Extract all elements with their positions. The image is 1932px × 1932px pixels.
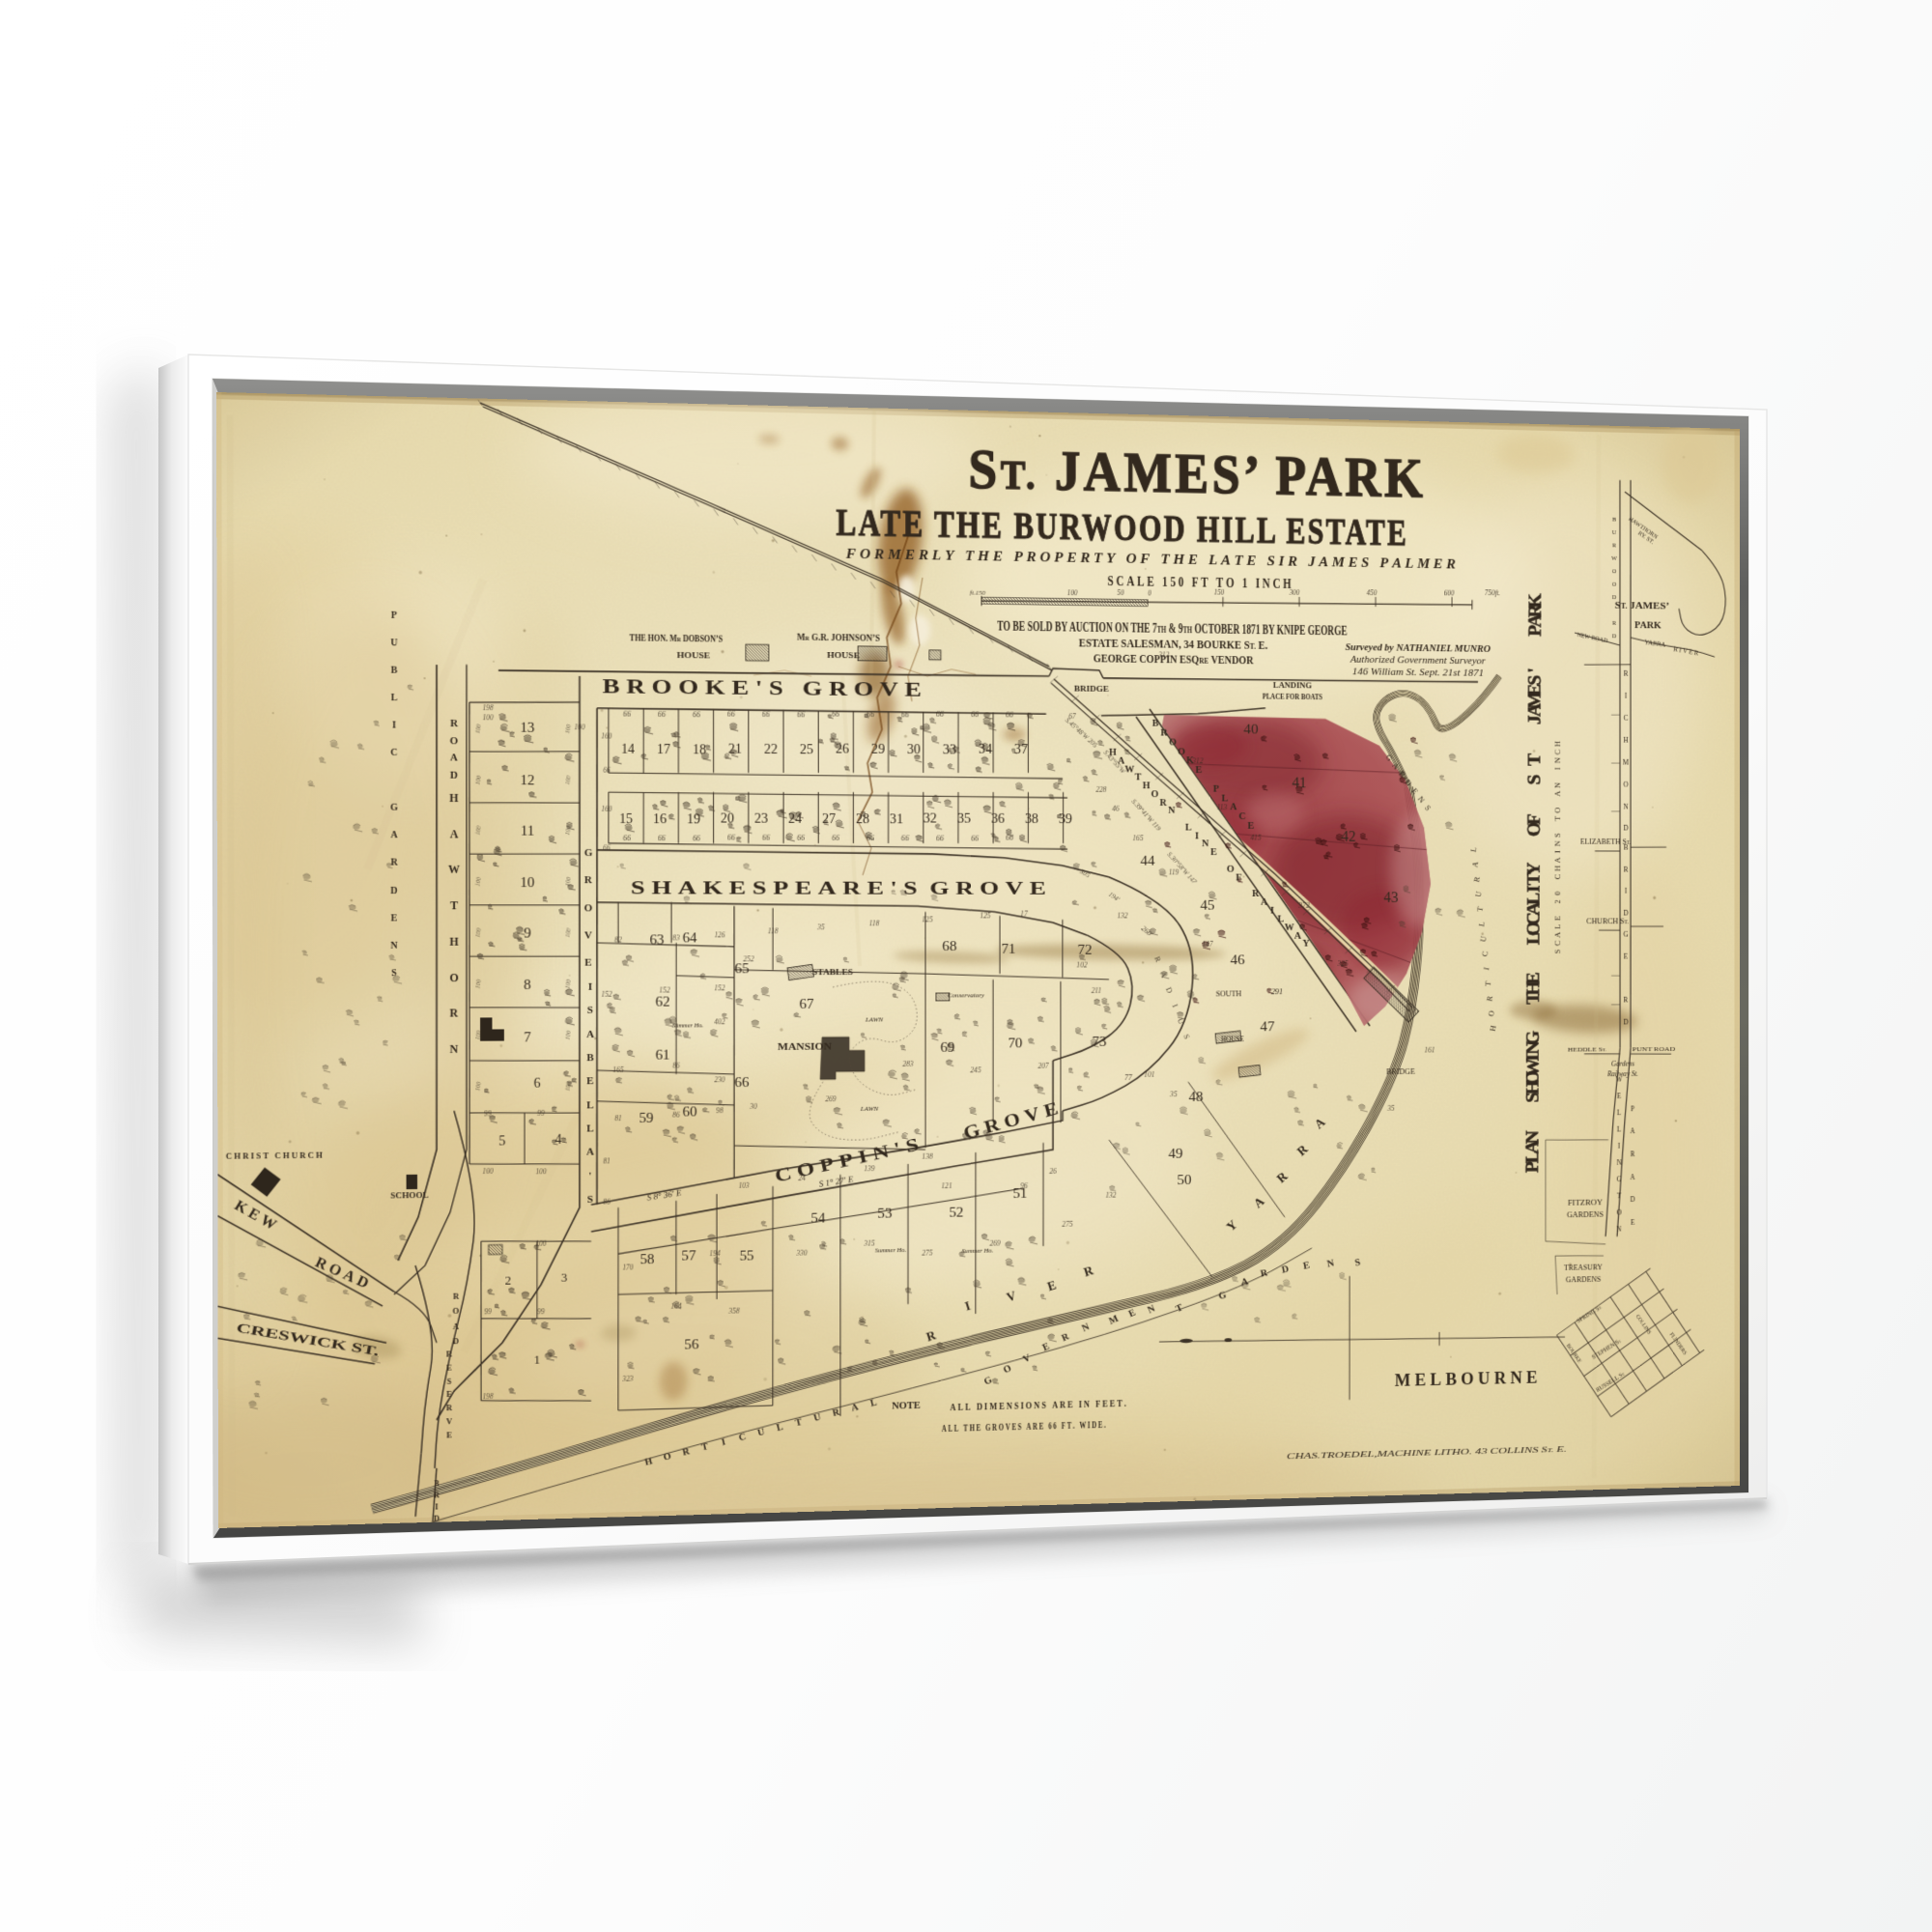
- svg-text:63: 63: [649, 933, 664, 949]
- svg-text:35: 35: [1169, 1090, 1177, 1097]
- svg-text:71: 71: [1001, 942, 1015, 957]
- svg-text:R: R: [446, 1404, 453, 1413]
- svg-text:160: 160: [601, 732, 611, 741]
- svg-text:24: 24: [798, 1174, 806, 1182]
- svg-text:8: 8: [524, 977, 531, 992]
- svg-text:4: 4: [554, 1132, 561, 1147]
- svg-text:Conservatory: Conservatory: [948, 990, 985, 999]
- svg-text:55: 55: [740, 1249, 754, 1264]
- svg-text:ST. JAMES’: ST. JAMES’: [1615, 600, 1669, 611]
- svg-text:ESTATE SALESMAN, 34 BOURKE ST.: ESTATE SALESMAN, 34 BOURKE ST. E.: [1079, 637, 1268, 653]
- svg-text:170: 170: [622, 1264, 633, 1272]
- svg-text:600: 600: [1444, 588, 1455, 596]
- svg-text:O: O: [1617, 1208, 1622, 1216]
- svg-text:66: 66: [603, 843, 611, 852]
- svg-text:300: 300: [1289, 588, 1300, 597]
- svg-text:R: R: [1624, 670, 1629, 678]
- svg-text:HEDDLE ST.: HEDDLE ST.: [1568, 1045, 1606, 1053]
- svg-text:D: D: [453, 1336, 459, 1346]
- svg-text:H: H: [1553, 741, 1562, 747]
- svg-text:SCHOOL: SCHOOL: [390, 1190, 429, 1200]
- svg-text:99: 99: [537, 1109, 545, 1118]
- svg-text:165: 165: [1132, 834, 1143, 841]
- svg-text:66: 66: [832, 834, 840, 842]
- svg-text:86: 86: [603, 1198, 611, 1207]
- svg-text:E: E: [1631, 1219, 1634, 1227]
- svg-text:ELIZABETH ST.: ELIZABETH ST.: [1580, 838, 1632, 845]
- svg-text:R: R: [1624, 996, 1629, 1004]
- svg-text:R: R: [1612, 543, 1616, 549]
- svg-text:R: R: [584, 875, 593, 887]
- svg-text:118: 118: [869, 919, 880, 927]
- svg-text:T: T: [1617, 1192, 1621, 1200]
- svg-text:N: N: [1553, 782, 1562, 788]
- svg-text:23: 23: [754, 812, 768, 827]
- svg-text:33: 33: [943, 743, 956, 757]
- svg-text:66: 66: [1006, 833, 1014, 841]
- svg-text:D: D: [1623, 825, 1628, 833]
- svg-text:B: B: [391, 666, 398, 676]
- svg-text:U: U: [390, 639, 397, 649]
- svg-text:T: T: [450, 899, 458, 913]
- svg-text:D: D: [1623, 1018, 1628, 1026]
- svg-text:66: 66: [658, 710, 667, 719]
- svg-text:147: 147: [1202, 940, 1213, 948]
- svg-text:24: 24: [788, 812, 803, 827]
- svg-text:R: R: [434, 1491, 440, 1499]
- svg-text:MR G.R. JOHNSON’S: MR G.R. JOHNSON’S: [797, 633, 880, 644]
- svg-text:N: N: [1521, 1129, 1542, 1144]
- svg-text:I: I: [1523, 885, 1544, 893]
- svg-text:100: 100: [482, 713, 493, 722]
- svg-text:69: 69: [940, 1040, 954, 1056]
- svg-text:66: 66: [734, 1075, 749, 1091]
- svg-text:H: H: [1109, 748, 1117, 758]
- svg-text:46: 46: [1230, 951, 1244, 968]
- svg-text:E: E: [586, 1076, 593, 1088]
- svg-text:26: 26: [836, 743, 849, 757]
- svg-text:41: 41: [1292, 774, 1306, 791]
- svg-text:64: 64: [683, 930, 697, 946]
- svg-text:D: D: [1612, 594, 1616, 600]
- svg-text:96: 96: [1020, 1181, 1027, 1190]
- svg-text:65: 65: [734, 961, 749, 977]
- svg-text:450: 450: [1367, 588, 1378, 596]
- svg-text:P: P: [391, 611, 397, 621]
- svg-text:66: 66: [936, 709, 945, 719]
- svg-text:38: 38: [1025, 812, 1038, 827]
- svg-text:A: A: [1553, 790, 1562, 796]
- svg-text:59: 59: [639, 1111, 653, 1126]
- svg-text:U: U: [1612, 530, 1616, 536]
- svg-text:325: 325: [1336, 959, 1348, 967]
- svg-text:198: 198: [482, 1392, 493, 1401]
- svg-text:A: A: [450, 753, 458, 764]
- svg-text:A: A: [1553, 931, 1562, 937]
- svg-text:T: T: [1523, 753, 1544, 766]
- svg-text:E: E: [1248, 821, 1255, 832]
- svg-text:N: N: [1202, 838, 1208, 849]
- svg-text:152: 152: [659, 986, 669, 995]
- svg-text:S: S: [1553, 950, 1562, 954]
- svg-text:F: F: [1523, 813, 1544, 825]
- svg-text:I: I: [392, 721, 396, 731]
- svg-text:150: 150: [1214, 588, 1225, 597]
- svg-text:358: 358: [727, 1307, 739, 1316]
- svg-text:L: L: [1185, 822, 1192, 833]
- svg-text:19: 19: [687, 811, 700, 826]
- svg-text:N: N: [1616, 1226, 1621, 1234]
- svg-text:43: 43: [1384, 889, 1399, 906]
- svg-text:N: N: [1168, 806, 1175, 816]
- svg-text:T: T: [1135, 772, 1142, 782]
- svg-text:A: A: [390, 831, 398, 841]
- svg-text:T: T: [1553, 815, 1562, 821]
- svg-text:S: S: [447, 1377, 452, 1386]
- svg-text:66: 66: [971, 709, 980, 719]
- svg-text:17: 17: [1020, 909, 1028, 917]
- svg-text:66: 66: [867, 710, 875, 719]
- svg-text:C: C: [1553, 750, 1562, 755]
- svg-text:C: C: [1553, 941, 1562, 947]
- svg-text:161: 161: [1424, 1046, 1435, 1054]
- svg-text:SOUTH: SOUTH: [1216, 988, 1242, 997]
- svg-text:H: H: [1143, 781, 1151, 791]
- svg-text:46: 46: [1112, 805, 1119, 812]
- svg-text:121: 121: [941, 1181, 952, 1190]
- svg-text:O: O: [1612, 569, 1616, 575]
- svg-text:LANDING: LANDING: [1273, 681, 1312, 691]
- svg-text:E: E: [1553, 916, 1562, 921]
- svg-text:245: 245: [970, 1065, 980, 1074]
- svg-text:275: 275: [1062, 1220, 1072, 1229]
- svg-text:HOUSE: HOUSE: [827, 651, 860, 661]
- svg-text:P: P: [1631, 1105, 1634, 1113]
- svg-text:L: L: [1278, 914, 1285, 924]
- svg-text:54: 54: [811, 1211, 826, 1227]
- svg-text:164: 164: [670, 1302, 681, 1311]
- svg-text:I: I: [435, 1503, 438, 1512]
- svg-text:50: 50: [1177, 1172, 1191, 1188]
- svg-text:160: 160: [601, 805, 611, 813]
- svg-text:82: 82: [614, 936, 622, 945]
- svg-text:275: 275: [922, 1249, 932, 1258]
- svg-text:67: 67: [1068, 712, 1076, 721]
- svg-text:66: 66: [603, 766, 611, 775]
- svg-text:125: 125: [980, 911, 990, 919]
- svg-text:86: 86: [672, 1111, 680, 1120]
- svg-text:0: 0: [1148, 588, 1151, 596]
- svg-text:C H R I S T C H U R C H: C H R I S T C H U R C H: [226, 1151, 324, 1162]
- svg-text:32: 32: [923, 812, 937, 827]
- svg-text:66: 66: [797, 834, 806, 842]
- svg-text:50: 50: [1117, 588, 1123, 597]
- svg-text:W: W: [1285, 922, 1294, 932]
- svg-text:45: 45: [1201, 897, 1215, 914]
- svg-text:66: 66: [901, 833, 910, 841]
- svg-text:198: 198: [482, 703, 493, 712]
- svg-text:119: 119: [1169, 867, 1179, 875]
- svg-text:H: H: [449, 935, 459, 949]
- svg-text:68: 68: [942, 939, 956, 954]
- svg-text:O: O: [584, 902, 593, 914]
- svg-text:L: L: [1522, 893, 1543, 905]
- svg-text:81: 81: [603, 1157, 610, 1166]
- svg-text:5: 5: [498, 1134, 505, 1149]
- svg-text:CHURCH ST.: CHURCH ST.: [1586, 918, 1629, 925]
- svg-text:312: 312: [1191, 756, 1203, 764]
- svg-text:9: 9: [524, 925, 531, 941]
- svg-text:42: 42: [1341, 828, 1355, 845]
- svg-text:100: 100: [535, 1239, 546, 1248]
- svg-text:20: 20: [721, 812, 734, 827]
- svg-text:34: 34: [979, 743, 993, 757]
- svg-text:FITZROY: FITZROY: [1568, 1199, 1604, 1207]
- svg-text:': ': [588, 1171, 591, 1182]
- svg-text:62: 62: [655, 995, 669, 1010]
- svg-text:12: 12: [521, 772, 535, 787]
- svg-text:O: O: [449, 971, 458, 984]
- svg-text:330: 330: [795, 1249, 807, 1258]
- svg-text:83: 83: [672, 933, 680, 942]
- svg-text:66: 66: [623, 710, 632, 719]
- svg-text:70: 70: [1008, 1036, 1022, 1051]
- svg-text:A: A: [1230, 802, 1236, 812]
- svg-text:81: 81: [614, 1114, 622, 1122]
- svg-text:B: B: [1612, 517, 1616, 523]
- svg-text:A: A: [1553, 857, 1562, 863]
- svg-text:E: E: [1196, 765, 1203, 776]
- svg-text:STABLES: STABLES: [812, 967, 853, 977]
- svg-text:O: O: [1151, 789, 1159, 800]
- svg-text:O: O: [1227, 864, 1235, 874]
- svg-text:R: R: [1631, 1151, 1635, 1158]
- svg-text:25: 25: [800, 743, 813, 757]
- svg-text:S: S: [587, 1194, 593, 1206]
- svg-text:Y: Y: [1302, 939, 1309, 950]
- svg-text:G: G: [1616, 1176, 1621, 1183]
- svg-text:66: 66: [971, 833, 980, 841]
- svg-text:S: S: [587, 1006, 593, 1017]
- svg-text:Authorized Government Surveyor: Authorized Government Surveyor: [1350, 655, 1487, 668]
- svg-text:291: 291: [1271, 987, 1283, 996]
- svg-text:27: 27: [822, 812, 836, 827]
- svg-text:R: R: [1160, 797, 1167, 808]
- svg-text:B: B: [586, 1053, 594, 1065]
- svg-text:I: I: [1553, 767, 1562, 770]
- svg-text:O: O: [1612, 582, 1616, 587]
- svg-text:58: 58: [639, 1251, 654, 1266]
- svg-text:I: I: [1625, 888, 1628, 895]
- svg-text:36: 36: [991, 812, 1005, 827]
- svg-text:35: 35: [1386, 1105, 1394, 1113]
- svg-text:165: 165: [612, 1065, 623, 1074]
- svg-text:29: 29: [871, 743, 885, 757]
- svg-text:S: S: [1523, 775, 1544, 785]
- svg-text:40: 40: [1244, 720, 1259, 737]
- svg-text:0: 0: [1553, 891, 1562, 895]
- svg-text:E: E: [446, 1390, 452, 1400]
- svg-text:18: 18: [693, 742, 706, 756]
- svg-text:W: W: [1124, 764, 1134, 775]
- svg-text:28: 28: [856, 812, 869, 827]
- svg-text:66: 66: [1006, 709, 1014, 718]
- svg-text:O: O: [1553, 807, 1562, 812]
- svg-text:6: 6: [534, 1076, 541, 1091]
- svg-text:C: C: [390, 749, 397, 759]
- svg-text:S: S: [1524, 675, 1545, 686]
- svg-text:138: 138: [922, 1152, 932, 1161]
- svg-text:A: A: [1261, 897, 1267, 908]
- svg-text:57: 57: [681, 1248, 696, 1264]
- svg-text:I: I: [1625, 692, 1628, 699]
- svg-text:77: 77: [1124, 1072, 1133, 1081]
- svg-text:GARDENS: GARDENS: [1566, 1275, 1601, 1284]
- svg-text:N: N: [390, 941, 398, 952]
- svg-text:TREASURY: TREASURY: [1564, 1264, 1603, 1272]
- svg-text:I: I: [1618, 1142, 1621, 1150]
- svg-text:252: 252: [743, 954, 753, 963]
- svg-text:A: A: [453, 1321, 460, 1331]
- svg-text:PLACE FOR BOATS: PLACE FOR BOATS: [1263, 693, 1322, 702]
- svg-text:E: E: [446, 1430, 452, 1439]
- svg-text:O: O: [1623, 781, 1628, 788]
- svg-text:66: 66: [797, 710, 806, 719]
- svg-text:O: O: [1178, 746, 1185, 756]
- svg-text:S H A K E S P E A R E ' S G R: S H A K E S P E A R E ' S G R O V E: [631, 878, 1046, 898]
- svg-text:269: 269: [989, 1239, 1000, 1248]
- svg-text:L: L: [1553, 924, 1562, 929]
- svg-text:R: R: [450, 1007, 459, 1020]
- svg-text:72: 72: [1077, 943, 1092, 958]
- svg-text:Surveyed by NATHANIEL MUNRO: Surveyed by NATHANIEL MUNRO: [1346, 641, 1492, 655]
- svg-text:B: B: [434, 1479, 440, 1488]
- svg-text:99: 99: [537, 1307, 545, 1316]
- svg-text:17: 17: [657, 742, 670, 756]
- svg-text:269: 269: [825, 1094, 836, 1103]
- svg-text:A: A: [586, 1147, 595, 1158]
- svg-text:E: E: [1210, 847, 1217, 858]
- svg-text:C: C: [1624, 714, 1629, 722]
- svg-text:60: 60: [683, 1105, 697, 1121]
- svg-text:D: D: [1630, 1196, 1634, 1204]
- svg-text:35: 35: [816, 923, 825, 931]
- svg-text:Summer Ho.: Summer Ho.: [875, 1247, 907, 1254]
- svg-text:R: R: [1252, 889, 1259, 899]
- svg-text:P: P: [1213, 783, 1219, 794]
- svg-text:H: H: [449, 791, 459, 805]
- svg-text:44: 44: [1140, 853, 1154, 869]
- svg-text:61: 61: [655, 1047, 669, 1063]
- svg-text:21: 21: [728, 743, 742, 757]
- svg-text:L: L: [586, 1100, 594, 1112]
- svg-text:3: 3: [561, 1270, 568, 1285]
- svg-text:C: C: [1238, 811, 1245, 822]
- svg-text:GEORGE COPPIN ESQRE VENDOR: GEORGE COPPIN ESQRE VENDOR: [1094, 651, 1254, 667]
- svg-text:Railway St.: Railway St.: [1606, 1070, 1638, 1078]
- svg-text:E: E: [1624, 952, 1628, 960]
- svg-text:L: L: [1617, 1125, 1621, 1133]
- svg-text:K: K: [1524, 593, 1545, 609]
- svg-text:100: 100: [482, 1167, 493, 1176]
- svg-text:S: S: [391, 968, 397, 979]
- svg-text:M: M: [1623, 758, 1629, 766]
- svg-text:N: N: [450, 1042, 459, 1056]
- svg-text:22: 22: [764, 743, 778, 757]
- svg-text:HOUSE: HOUSE: [1221, 1035, 1244, 1043]
- svg-text:LAWN: LAWN: [860, 1104, 879, 1113]
- svg-text:126: 126: [714, 930, 724, 939]
- svg-text:99: 99: [484, 1307, 492, 1316]
- svg-text:100: 100: [535, 1167, 546, 1176]
- svg-text:R: R: [1624, 866, 1629, 873]
- svg-text:B: B: [1152, 719, 1159, 729]
- svg-text:E: E: [391, 913, 398, 923]
- svg-text:I: I: [1195, 831, 1199, 841]
- svg-text:G: G: [1623, 931, 1628, 939]
- svg-text:Y: Y: [1523, 862, 1544, 875]
- svg-text:132: 132: [1105, 1191, 1116, 1200]
- svg-text:S: S: [1553, 833, 1562, 838]
- svg-text:132: 132: [1117, 911, 1127, 919]
- svg-text:228: 228: [1095, 785, 1106, 793]
- svg-text:O: O: [450, 735, 459, 747]
- svg-text:I: I: [588, 981, 593, 993]
- svg-text:49: 49: [1169, 1146, 1183, 1162]
- svg-text:W: W: [1611, 555, 1617, 562]
- svg-text:10: 10: [520, 875, 534, 891]
- svg-text:S C A L E 1 5 0 F T T O: S C A L E 1 5 0 F T T O 1 I N C H: [1107, 573, 1292, 592]
- svg-text:E: E: [584, 957, 591, 969]
- svg-text:56: 56: [684, 1336, 698, 1352]
- svg-text:100: 100: [1067, 588, 1078, 597]
- svg-text:PARK: PARK: [1634, 620, 1662, 631]
- svg-text:323: 323: [621, 1375, 633, 1383]
- svg-text:315: 315: [863, 1239, 874, 1248]
- svg-text:BRIDGE: BRIDGE: [1074, 684, 1109, 694]
- svg-text:MANSION: MANSION: [778, 1041, 833, 1053]
- svg-text:Gardens: Gardens: [1611, 1060, 1634, 1067]
- svg-text:283: 283: [902, 1060, 913, 1068]
- svg-text:139: 139: [864, 1164, 874, 1173]
- svg-text:R: R: [453, 1292, 460, 1301]
- svg-text:101: 101: [1144, 1070, 1154, 1078]
- svg-text:66: 66: [762, 710, 771, 719]
- svg-text:W: W: [1616, 1076, 1623, 1084]
- svg-text:66: 66: [693, 710, 701, 719]
- svg-text:37: 37: [1014, 743, 1029, 757]
- svg-text:67: 67: [799, 997, 813, 1012]
- svg-text:13: 13: [520, 720, 534, 735]
- svg-text:Summer Ho.: Summer Ho.: [672, 1023, 704, 1030]
- svg-text:V: V: [584, 930, 593, 942]
- svg-text:125: 125: [922, 915, 932, 923]
- svg-text:R: R: [450, 718, 459, 729]
- svg-text:D: D: [450, 770, 458, 781]
- svg-text:B R O O K E ' S G R O V E: B R O O K E ' S G R O V E: [603, 675, 922, 700]
- svg-text:C: C: [1553, 874, 1562, 880]
- svg-text:PUNT ROAD: PUNT ROAD: [1633, 1044, 1675, 1052]
- svg-text:230: 230: [714, 1075, 724, 1084]
- svg-text:66: 66: [832, 710, 840, 719]
- svg-text:1: 1: [534, 1352, 541, 1367]
- svg-text:66: 66: [901, 709, 910, 719]
- svg-text:D: D: [1623, 909, 1628, 917]
- svg-text:31: 31: [890, 812, 903, 827]
- svg-text:LAWN: LAWN: [865, 1015, 884, 1024]
- svg-text:35: 35: [957, 812, 971, 827]
- svg-text:113: 113: [1217, 803, 1228, 810]
